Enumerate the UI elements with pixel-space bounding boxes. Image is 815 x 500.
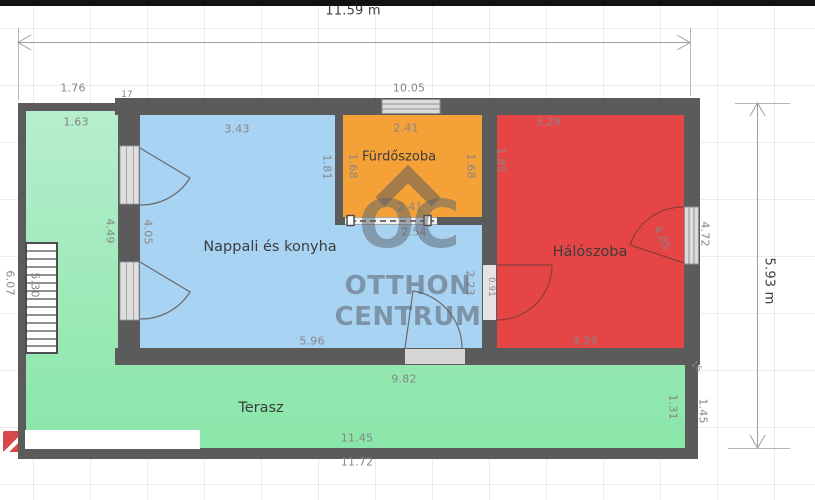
dim-living-upper-right: 1.81 bbox=[321, 154, 334, 179]
dim-terrace-left-height: 4.49 bbox=[104, 218, 117, 243]
label-room-living: Nappali és konyha bbox=[203, 239, 336, 255]
dim-bedroom-left: 1.85 bbox=[495, 147, 508, 172]
window-top bbox=[382, 100, 440, 114]
plan-linework bbox=[0, 0, 815, 500]
dim-wall-thickness-17: 17 bbox=[121, 90, 132, 100]
top-black-bar bbox=[0, 0, 815, 6]
dim-bedroom-top: 3.29 bbox=[535, 116, 560, 129]
label-room-bathroom: Fürdőszoba bbox=[362, 150, 436, 165]
dim-living-top: 3.43 bbox=[224, 123, 249, 136]
dim-terrace-bottom-inner: 11.45 bbox=[341, 432, 374, 445]
label-room-bedroom: Hálószoba bbox=[553, 244, 628, 260]
dim-bathroom-right: 1.68 bbox=[465, 153, 478, 178]
dim-bedroom-bottom: 3.29 bbox=[572, 335, 597, 348]
dim-bathroom-below: 2.54 bbox=[401, 226, 426, 239]
dim-terrace-right-outer: 1.45 bbox=[697, 398, 710, 423]
dim-bathroom-top: 2.41 bbox=[393, 122, 418, 135]
whiteout-box bbox=[25, 430, 200, 449]
dim-overall-height: 5.93 m bbox=[762, 258, 777, 305]
dim-living-left: 4.05 bbox=[142, 219, 155, 244]
dim-bathroom-left: 1.68 bbox=[347, 153, 360, 178]
dim-bedroom-door: 0.91 bbox=[486, 277, 496, 297]
door-living-upper bbox=[120, 146, 190, 205]
door-living-terrace bbox=[405, 291, 465, 364]
dim-top-inner-width: 10.05 bbox=[393, 82, 426, 95]
door-living-lower bbox=[120, 262, 190, 320]
dim-living-right: 2.23 bbox=[464, 270, 477, 295]
dim-terrace-left-top: 1.76 bbox=[60, 82, 85, 95]
floorplan-page: { "watermark": { "logo": "OC", "line1": … bbox=[0, 0, 815, 500]
dim-terrace-left-inner: 1.63 bbox=[63, 116, 88, 129]
dim-living-bottom: 5.96 bbox=[299, 335, 324, 348]
window-right bbox=[685, 207, 699, 264]
stairs bbox=[26, 243, 57, 353]
dim-terrace-bottom-outer: 11.72 bbox=[341, 456, 374, 469]
dim-terrace-outer-left: 6.07 bbox=[4, 270, 17, 295]
dim-stairs-length: 5.30 bbox=[29, 272, 42, 297]
dim-bathroom-bottom: 2.41 bbox=[397, 201, 422, 214]
dim-bottom-inner-width: 9.82 bbox=[391, 373, 416, 386]
dim-terrace-right-inner: 1.31 bbox=[667, 394, 680, 419]
dimension-line-top bbox=[18, 35, 690, 50]
label-room-terrace: Terasz bbox=[238, 400, 283, 416]
sliding-door-bathroom bbox=[345, 216, 437, 226]
dim-right-window-height: 4.72 bbox=[699, 221, 712, 246]
